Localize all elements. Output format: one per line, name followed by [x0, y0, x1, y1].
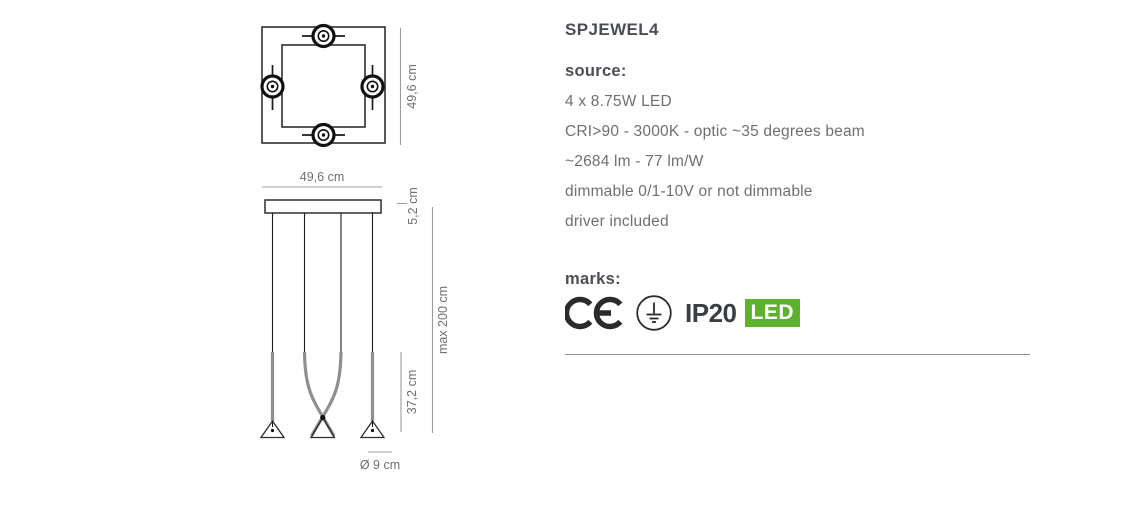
- canopy: [265, 200, 381, 213]
- spec-line-lumen: ~2684 lm - 77 lm/W: [565, 153, 703, 171]
- led-badge: LED: [745, 299, 801, 327]
- spec-line-driver: driver included: [565, 213, 669, 231]
- spec-line-dimming: dimmable 0/1-10V or not dimmable: [565, 183, 813, 201]
- canopy-height-dimension-label: 5,2 cm: [406, 187, 420, 225]
- product-spec-sheet: 49,6 cm 49,6 cm: [0, 0, 1148, 510]
- section-divider: [565, 354, 1030, 355]
- cone-diffuser: [361, 421, 384, 438]
- certification-marks-row: IP20 LED: [565, 295, 800, 331]
- earth-ground-icon: [635, 294, 673, 332]
- top-view-height-dimension-label: 49,6 cm: [405, 64, 419, 108]
- cone-diffuser: [261, 421, 284, 438]
- marks-heading: marks:: [565, 270, 621, 289]
- ip-rating-label: IP20: [685, 298, 737, 329]
- ce-mark-icon: [565, 295, 625, 331]
- spec-line-cri-optic: CRI>90 - 3000K - optic ~35 degrees beam: [565, 123, 865, 141]
- side-view-width-dimension-label: 49,6 cm: [300, 170, 344, 184]
- product-title: SPJEWEL4: [565, 20, 659, 40]
- top-view-diagram: 49,6 cm: [262, 26, 419, 146]
- spot-connector-icon: [302, 26, 345, 47]
- max-suspension-dimension-label: max 200 cm: [436, 286, 450, 354]
- diffuser-diameter-dimension-label: Ø 9 cm: [360, 458, 400, 472]
- source-heading: source:: [565, 62, 627, 81]
- side-view-diagram: 49,6 cm: [261, 170, 450, 472]
- spec-line-source: 4 x 8.75W LED: [565, 93, 672, 111]
- spot-connector-icon: [262, 65, 283, 110]
- cone-diffuser-crossed: [311, 415, 335, 438]
- diffuser-height-dimension-label: 37,2 cm: [405, 370, 419, 414]
